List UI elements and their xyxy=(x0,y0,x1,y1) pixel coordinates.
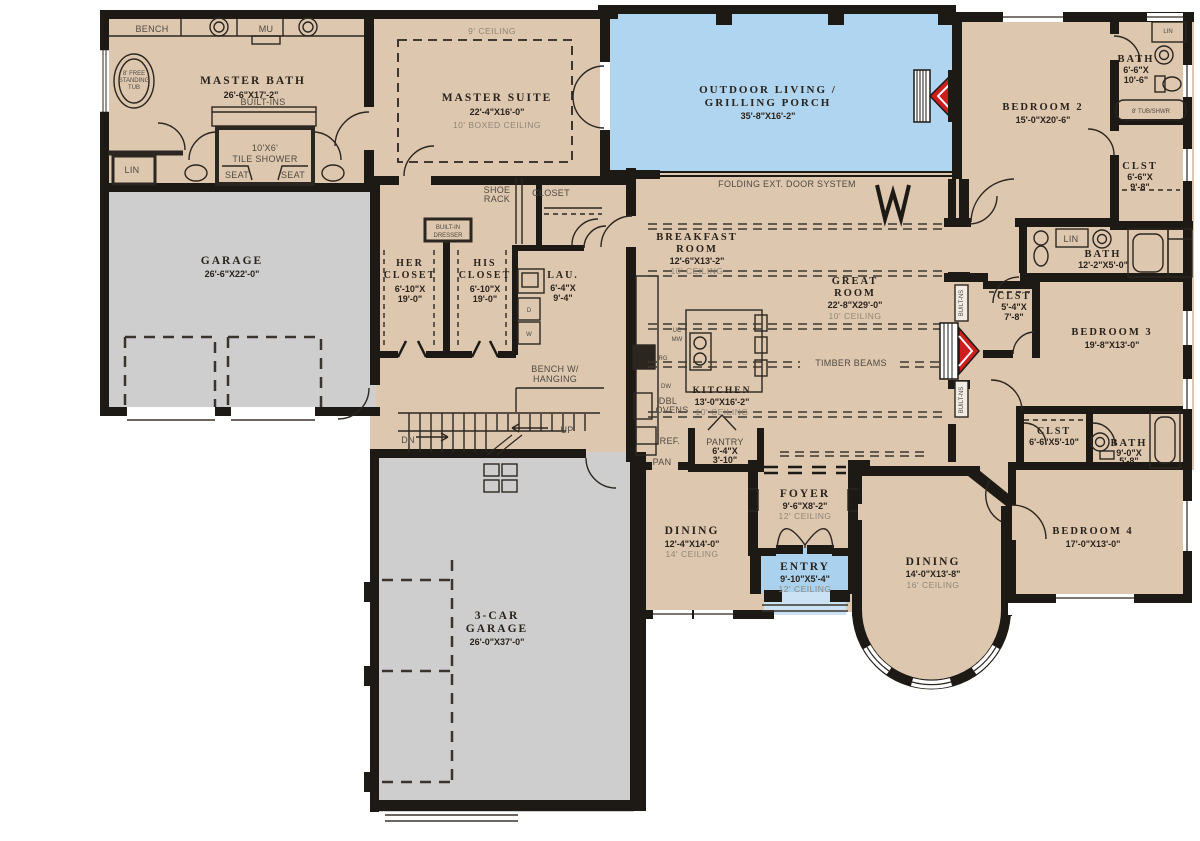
svg-text:6'-10"X: 6'-10"X xyxy=(470,284,500,294)
svg-text:9'-4": 9'-4" xyxy=(553,293,572,303)
svg-text:BEDROOM 2: BEDROOM 2 xyxy=(1002,102,1083,113)
svg-text:3-CAR: 3-CAR xyxy=(475,610,520,622)
svg-text:CLST: CLST xyxy=(997,291,1031,302)
svg-text:12'-6"X13'-2": 12'-6"X13'-2" xyxy=(670,256,725,266)
svg-text:BUILT-NS: BUILT-NS xyxy=(959,290,965,317)
svg-text:OUTDOOR LIVING /: OUTDOOR LIVING / xyxy=(699,84,837,96)
svg-text:26'-0"X37'-0": 26'-0"X37'-0" xyxy=(470,637,525,647)
svg-text:CLOSET: CLOSET xyxy=(459,270,512,281)
svg-text:DINING: DINING xyxy=(906,556,961,568)
svg-text:MW: MW xyxy=(672,337,683,343)
svg-text:MU: MU xyxy=(259,24,274,34)
svg-text:35'-8"X16'-2": 35'-8"X16'-2" xyxy=(741,111,796,121)
svg-text:GRILLING PORCH: GRILLING PORCH xyxy=(705,97,832,109)
svg-text:6'-6"X: 6'-6"X xyxy=(1127,172,1152,182)
svg-text:W: W xyxy=(526,332,532,338)
svg-text:FOYER: FOYER xyxy=(780,488,830,500)
svg-text:10' CEILING: 10' CEILING xyxy=(671,266,724,276)
svg-text:GARAGE: GARAGE xyxy=(466,623,528,635)
svg-text:DW: DW xyxy=(661,384,671,390)
svg-text:LIN: LIN xyxy=(1064,234,1079,244)
svg-text:12' CEILING: 12' CEILING xyxy=(779,584,832,594)
svg-text:STANDING: STANDING xyxy=(119,78,150,84)
svg-text:UP: UP xyxy=(560,425,573,435)
svg-text:UC: UC xyxy=(673,328,682,334)
svg-text:ROOM: ROOM xyxy=(676,244,718,255)
svg-text:BUILT-IN: BUILT-IN xyxy=(436,225,460,231)
svg-text:DRESSER: DRESSER xyxy=(433,233,463,239)
svg-text:BEDROOM 3: BEDROOM 3 xyxy=(1071,327,1152,338)
svg-text:9'-8": 9'-8" xyxy=(1130,182,1149,192)
svg-text:13'-0"X16'-2": 13'-0"X16'-2" xyxy=(695,397,750,407)
svg-text:ENTRY: ENTRY xyxy=(780,561,830,573)
svg-text:BENCH W/: BENCH W/ xyxy=(531,364,579,374)
svg-text:LAU.: LAU. xyxy=(547,270,579,281)
svg-text:26'-6"X22'-0": 26'-6"X22'-0" xyxy=(205,269,260,279)
svg-text:TUB: TUB xyxy=(128,85,140,91)
svg-text:16' CEILING: 16' CEILING xyxy=(907,580,960,590)
svg-text:10' CEILING: 10' CEILING xyxy=(696,407,749,417)
svg-text:8' FREE: 8' FREE xyxy=(123,71,145,77)
svg-text:BREAKFAST: BREAKFAST xyxy=(656,232,737,243)
svg-text:CLOSET: CLOSET xyxy=(532,188,570,198)
svg-text:BUILT-INS: BUILT-INS xyxy=(240,97,285,107)
svg-text:19'-0": 19'-0" xyxy=(473,294,497,304)
svg-text:5'-8": 5'-8" xyxy=(1119,456,1138,466)
svg-text:19'-8"X13'-0": 19'-8"X13'-0" xyxy=(1085,340,1140,350)
svg-text:9' CEILING: 9' CEILING xyxy=(468,26,516,36)
svg-text:6'-6"X5'-10": 6'-6"X5'-10" xyxy=(1029,437,1079,447)
svg-text:22'-8"X29'-0": 22'-8"X29'-0" xyxy=(828,300,883,310)
svg-text:REF.: REF. xyxy=(660,436,681,446)
svg-text:19'-0": 19'-0" xyxy=(398,294,422,304)
svg-text:HER: HER xyxy=(396,258,424,269)
svg-text:10'-6": 10'-6" xyxy=(1124,75,1148,85)
svg-text:SEAT: SEAT xyxy=(225,170,249,180)
svg-text:HANGING: HANGING xyxy=(533,374,577,384)
svg-text:BATH: BATH xyxy=(1118,54,1155,65)
svg-text:PAN: PAN xyxy=(653,457,672,467)
svg-text:BUILT-NS: BUILT-NS xyxy=(959,387,965,414)
svg-text:14'-0"X13'-8": 14'-0"X13'-8" xyxy=(906,569,961,579)
svg-text:7'-8": 7'-8" xyxy=(1004,312,1023,322)
svg-text:3'-10": 3'-10" xyxy=(713,455,737,465)
svg-text:RACK: RACK xyxy=(484,194,510,204)
svg-text:FOLDING EXT. DOOR SYSTEM: FOLDING EXT. DOOR SYSTEM xyxy=(718,179,856,189)
svg-text:LIN: LIN xyxy=(125,165,140,175)
svg-text:6'-6"X: 6'-6"X xyxy=(1123,65,1148,75)
svg-text:12'-2"X5'-0": 12'-2"X5'-0" xyxy=(1078,260,1128,270)
svg-text:CLOSET: CLOSET xyxy=(384,270,437,281)
svg-text:12' CEILING: 12' CEILING xyxy=(779,511,832,521)
svg-text:LIN: LIN xyxy=(1163,29,1172,35)
svg-text:ROOM: ROOM xyxy=(834,288,876,299)
svg-text:DN: DN xyxy=(401,435,415,445)
svg-text:17'-0"X13'-0": 17'-0"X13'-0" xyxy=(1066,539,1121,549)
svg-text:9'-10"X5'-4": 9'-10"X5'-4" xyxy=(780,574,830,584)
svg-text:D: D xyxy=(527,308,532,314)
svg-text:CLST: CLST xyxy=(1122,161,1157,172)
svg-text:HIS: HIS xyxy=(473,258,496,269)
svg-text:5'-4"X: 5'-4"X xyxy=(1001,302,1026,312)
svg-text:RG: RG xyxy=(659,356,668,362)
svg-text:OVENS: OVENS xyxy=(655,405,688,415)
svg-text:MASTER SUITE: MASTER SUITE xyxy=(442,92,553,104)
svg-text:TIMBER BEAMS: TIMBER BEAMS xyxy=(815,358,887,368)
svg-text:22'-4"X16'-0": 22'-4"X16'-0" xyxy=(470,107,525,117)
svg-text:CLST: CLST xyxy=(1037,426,1071,437)
svg-text:GREAT: GREAT xyxy=(832,276,879,287)
svg-text:TILE SHOWER: TILE SHOWER xyxy=(232,154,298,164)
svg-text:DINING: DINING xyxy=(665,525,720,537)
svg-text:10' CEILING: 10' CEILING xyxy=(829,311,882,321)
svg-text:14' CEILING: 14' CEILING xyxy=(666,549,719,559)
svg-text:BATH: BATH xyxy=(1085,249,1122,260)
svg-text:BENCH: BENCH xyxy=(135,24,168,34)
svg-text:6'-10"X: 6'-10"X xyxy=(395,284,425,294)
svg-text:SEAT: SEAT xyxy=(281,170,305,180)
svg-text:8' TUB/SHWR: 8' TUB/SHWR xyxy=(1132,109,1171,115)
svg-text:10'X6': 10'X6' xyxy=(252,143,278,153)
svg-text:15'-0"X20'-6": 15'-0"X20'-6" xyxy=(1016,115,1071,125)
svg-text:MASTER BATH: MASTER BATH xyxy=(200,75,306,87)
svg-text:9'-6"X8'-2": 9'-6"X8'-2" xyxy=(783,501,828,511)
svg-text:12'-4"X14'-0": 12'-4"X14'-0" xyxy=(665,539,720,549)
svg-text:BEDROOM 4: BEDROOM 4 xyxy=(1052,526,1133,537)
svg-text:6'-4"X: 6'-4"X xyxy=(550,283,575,293)
svg-text:10' BOXED CEILING: 10' BOXED CEILING xyxy=(453,120,541,130)
svg-text:GARAGE: GARAGE xyxy=(201,255,263,267)
svg-text:KITCHEN: KITCHEN xyxy=(693,386,752,396)
